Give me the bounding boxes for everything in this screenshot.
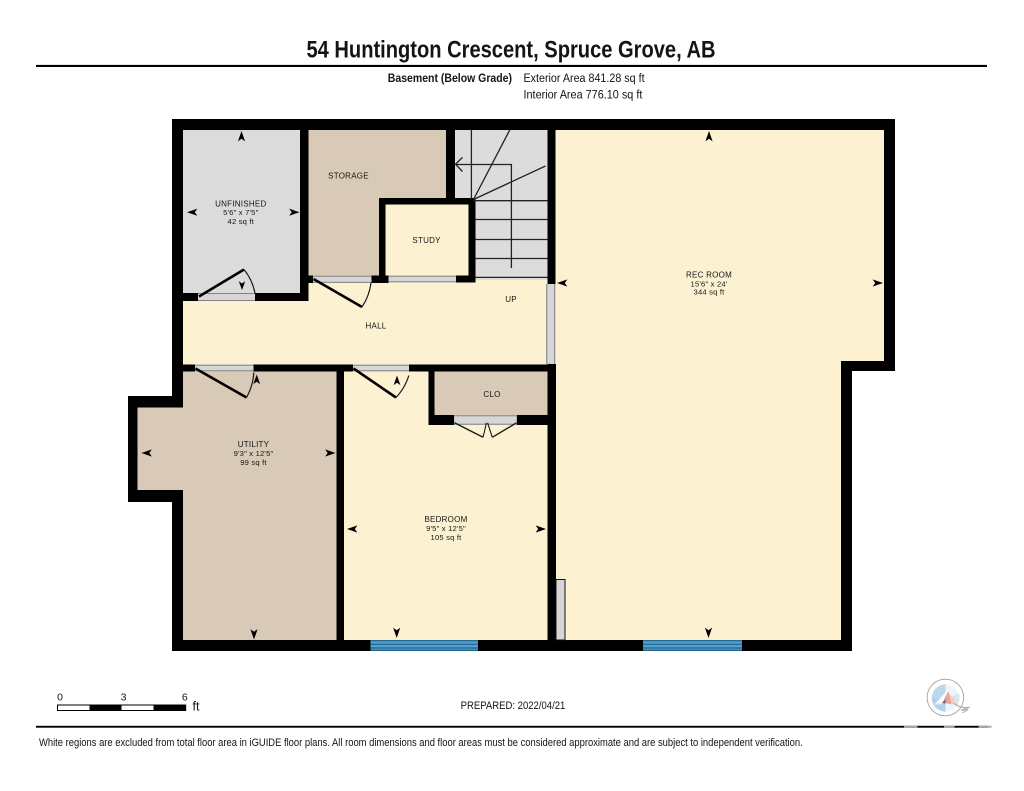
svg-text:STORAGE: STORAGE	[328, 172, 369, 181]
svg-text:9'5" x 12'5": 9'5" x 12'5"	[426, 524, 466, 533]
svg-text:UP: UP	[505, 295, 517, 304]
svg-text:Exterior Area 841.28 sq ft: Exterior Area 841.28 sq ft	[524, 72, 646, 85]
svg-text:BEDROOM: BEDROOM	[424, 515, 467, 524]
svg-text:Basement (Below Grade): Basement (Below Grade)	[388, 72, 512, 85]
svg-text:3: 3	[121, 691, 127, 703]
svg-text:99 sq ft: 99 sq ft	[240, 458, 267, 467]
svg-text:STUDY: STUDY	[412, 236, 441, 245]
svg-text:6: 6	[182, 691, 188, 703]
svg-text:42 sq ft: 42 sq ft	[228, 217, 255, 226]
svg-text:Interior Area 776.10 sq ft: Interior Area 776.10 sq ft	[524, 89, 644, 102]
svg-text:REC ROOM: REC ROOM	[686, 271, 732, 280]
svg-text:UTILITY: UTILITY	[238, 440, 270, 449]
svg-text:344 sq ft: 344 sq ft	[694, 288, 726, 297]
svg-text:PREPARED: 2022/04/21: PREPARED: 2022/04/21	[461, 700, 566, 712]
svg-text:0: 0	[57, 691, 63, 703]
svg-text:White regions are excluded fro: White regions are excluded from total fl…	[39, 737, 803, 749]
svg-text:ft: ft	[193, 700, 200, 714]
svg-text:CLO: CLO	[483, 390, 500, 399]
svg-text:54 Huntington Crescent, Spruce: 54 Huntington Crescent, Spruce Grove, AB	[306, 35, 715, 62]
svg-text:HALL: HALL	[365, 322, 386, 331]
svg-text:105 sq ft: 105 sq ft	[431, 533, 463, 542]
svg-text:9'3" x 12'5": 9'3" x 12'5"	[234, 449, 274, 458]
